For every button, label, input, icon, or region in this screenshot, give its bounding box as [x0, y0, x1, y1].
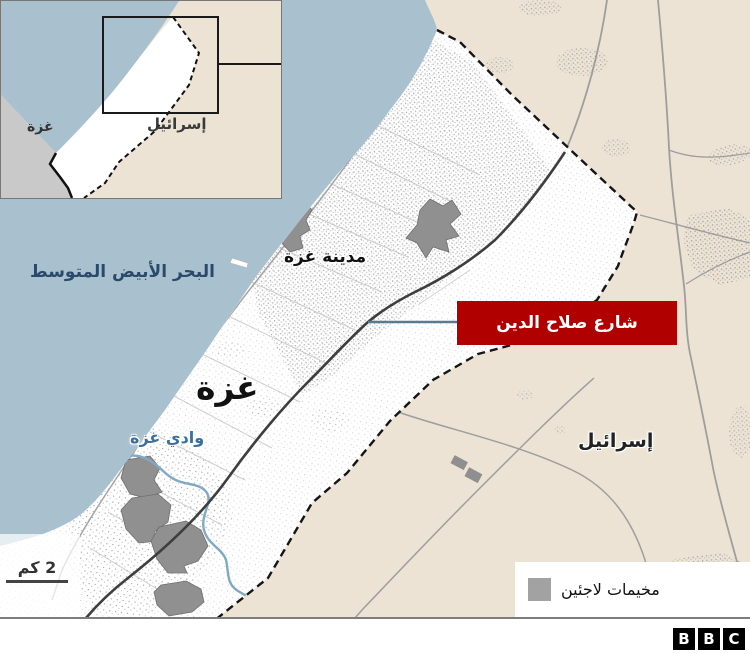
bbc-logo: B B C: [673, 628, 745, 650]
scale-bar: 2 كم: [6, 558, 68, 583]
gaza-label: غزة: [196, 368, 259, 407]
bbc-block-c: C: [723, 628, 745, 650]
gaza-city-label: مدينة غزة: [284, 247, 366, 267]
inset-gaza-label: غزة: [27, 119, 54, 135]
wadi-gaza-label: وادي غزة: [130, 428, 204, 447]
gaza-map-figure: البحر الأبيض المتوسط مدينة غزة غزة وادي …: [0, 0, 750, 654]
bbc-block-b1: B: [673, 628, 695, 650]
scale-label: 2 كم: [6, 558, 68, 577]
inset-map: غزة إسرائيل: [0, 0, 282, 199]
israel-label: إسرائيل: [578, 430, 653, 452]
legend: مخيمات لاجئين: [515, 562, 750, 617]
legend-label: مخيمات لاجئين: [561, 580, 660, 599]
refugee-camp-swatch: [528, 578, 551, 601]
sea-label: البحر الأبيض المتوسط: [30, 262, 215, 282]
bbc-block-b2: B: [698, 628, 720, 650]
scale-line: [6, 580, 68, 583]
footer: B B C: [0, 619, 750, 654]
inset-israel-label: إسرائيل: [147, 115, 207, 133]
road-callout-box: شارع صلاح الدين: [457, 301, 677, 345]
inset-canvas: [1, 1, 281, 198]
